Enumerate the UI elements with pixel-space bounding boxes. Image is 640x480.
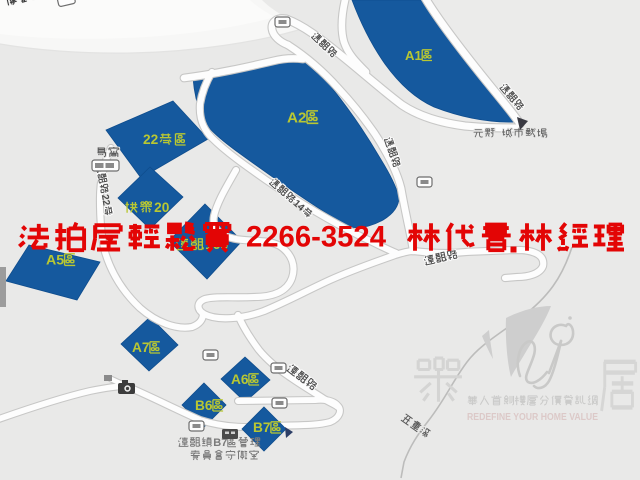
svg-text:B7: B7 xyxy=(253,420,271,435)
svg-text:REDEFINE YOUR HOME VALUE: REDEFINE YOUR HOME VALUE xyxy=(467,411,598,423)
svg-text:A1: A1 xyxy=(405,48,422,63)
svg-text:2266-3524: 2266-3524 xyxy=(246,221,386,254)
svg-text:B6: B6 xyxy=(195,398,213,413)
svg-text:22: 22 xyxy=(143,132,159,147)
svg-text:A6: A6 xyxy=(231,372,249,387)
svg-text:A2: A2 xyxy=(287,110,306,127)
svg-text:20: 20 xyxy=(154,200,170,215)
svg-text:A7: A7 xyxy=(132,340,150,355)
svg-text:A5: A5 xyxy=(46,253,64,269)
